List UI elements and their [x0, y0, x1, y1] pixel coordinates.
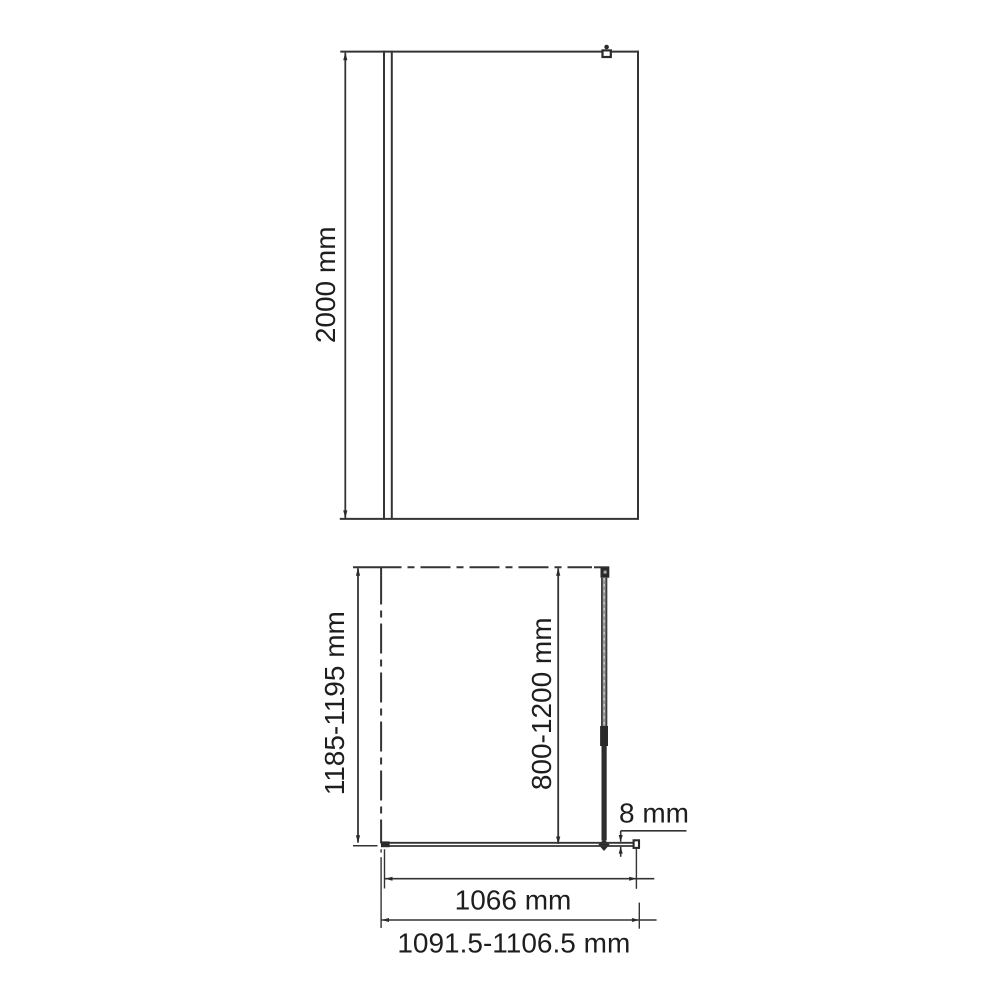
- svg-text:1066 mm: 1066 mm: [455, 885, 572, 916]
- svg-text:1185-1195 mm: 1185-1195 mm: [319, 611, 350, 795]
- svg-text:2000 mm: 2000 mm: [310, 226, 341, 343]
- svg-text:8 mm: 8 mm: [619, 797, 689, 828]
- svg-text:1091.5-1106.5 mm: 1091.5-1106.5 mm: [397, 927, 630, 958]
- svg-text:800-1200 mm: 800-1200 mm: [526, 617, 557, 790]
